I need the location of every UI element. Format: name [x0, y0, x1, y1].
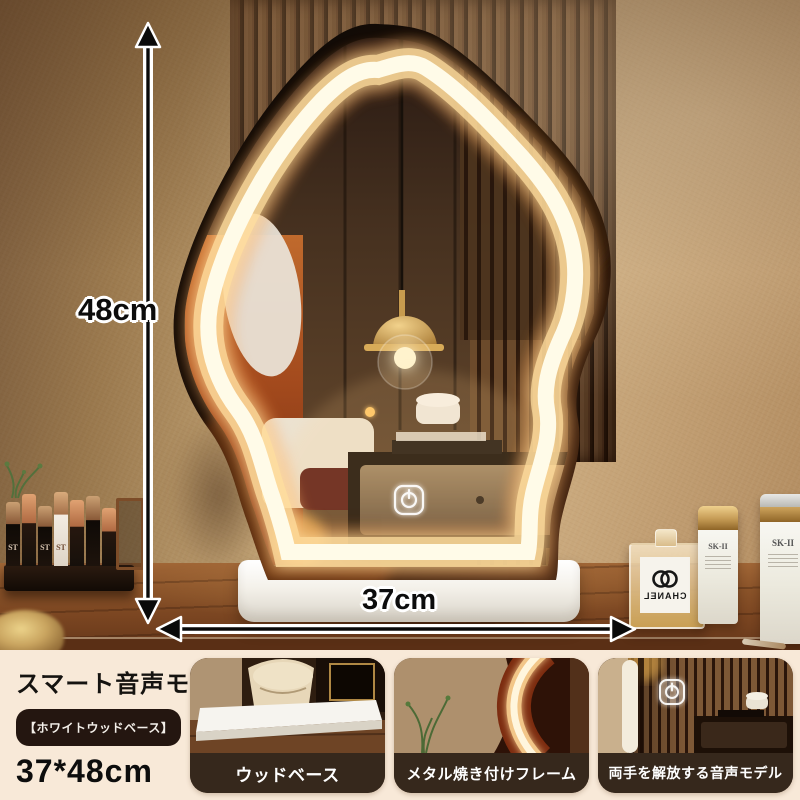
width-arrow	[157, 617, 635, 641]
main-product-photo[interactable]: ST ST ST CHANEL	[0, 0, 800, 650]
height-dimension-label: 48cm	[78, 292, 157, 328]
thumbnail-caption: ウッドベース	[190, 753, 385, 793]
model-title: スマート音声モデル	[16, 664, 188, 699]
product-listing-image: ST ST ST CHANEL	[0, 0, 800, 800]
info-strip: スマート音声モデル 【ホワイトウッドベース】 37*48cm	[0, 650, 800, 800]
model-info-block: スマート音声モデル 【ホワイトウッドベース】 37*48cm	[16, 664, 188, 790]
thumbnail-caption: メタル焼き付けフレーム	[394, 753, 589, 793]
variant-badge: 【ホワイトウッドベース】	[16, 709, 181, 746]
thumbnail-metal-frame[interactable]: メタル焼き付けフレーム	[394, 658, 589, 793]
size-text: 37*48cm	[16, 753, 188, 790]
power-icon	[660, 680, 684, 704]
width-dimension-label: 37cm	[362, 584, 436, 617]
thumbnail-voice-model[interactable]: 両手を解放する音声モデル	[598, 658, 793, 793]
thumbnail-caption: 両手を解放する音声モデル	[598, 753, 793, 793]
thumbnail-wood-base[interactable]: ウッドベース	[190, 658, 385, 793]
